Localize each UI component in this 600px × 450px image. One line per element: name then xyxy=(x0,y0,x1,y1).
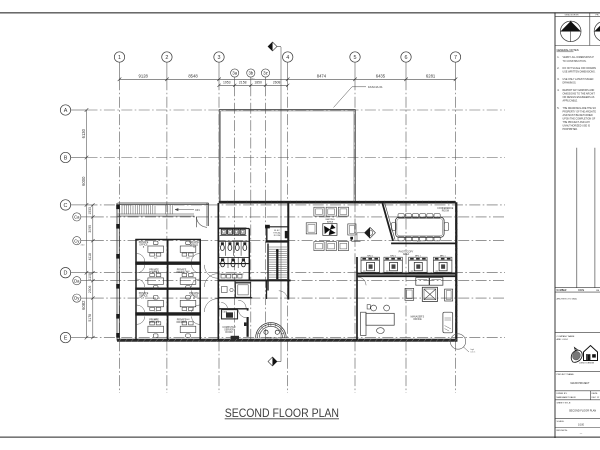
svg-text:THE DRAWINGS ARE THE SO: THE DRAWINGS ARE THE SO xyxy=(563,107,597,110)
svg-text:DRAWINGS.: DRAWINGS. xyxy=(563,82,577,85)
svg-text:OFFICE 2: OFFICE 2 xyxy=(176,322,187,324)
svg-text:5.: 5. xyxy=(557,107,559,110)
svg-text:1850: 1850 xyxy=(254,81,262,85)
svg-text:1.: 1. xyxy=(557,56,559,59)
svg-text:3z: 3z xyxy=(263,71,267,76)
svg-text:USE WRITTEN DIMENSIONS.: USE WRITTEN DIMENSIONS. xyxy=(563,71,596,74)
svg-text:APPLICABLE.: APPLICABLE. xyxy=(563,100,579,103)
svg-text:6435: 6435 xyxy=(376,74,386,79)
svg-text:0.5 m: 0.5 m xyxy=(471,351,476,353)
svg-text:2158: 2158 xyxy=(239,81,247,85)
svg-text:9128: 9128 xyxy=(139,74,149,79)
svg-text:4.: 4. xyxy=(557,89,559,92)
svg-text:DEC 12: DEC 12 xyxy=(592,397,600,399)
svg-text:REPORT ANY ERRORS AND: REPORT ANY ERRORS AND xyxy=(563,89,595,92)
svg-text:C: C xyxy=(64,203,68,209)
svg-text:OR DESIGN ENGINEERS AS: OR DESIGN ENGINEERS AS xyxy=(563,96,595,99)
svg-text:SCALE:: SCALE: xyxy=(557,420,565,423)
svg-text:3b: 3b xyxy=(248,71,253,76)
svg-text:AREA: AREA xyxy=(403,253,410,256)
svg-text:OFFICE 3: OFFICE 3 xyxy=(149,272,160,274)
svg-text:THE PROJECT AND ANY: THE PROJECT AND ANY xyxy=(563,121,591,124)
svg-text:A06: A06 xyxy=(154,311,157,314)
svg-text:OFFICE 1: OFFICE 1 xyxy=(149,322,160,324)
svg-text:2608: 2608 xyxy=(273,81,281,85)
svg-text:OFFICE: OFFICE xyxy=(413,319,422,321)
svg-text:A06: A06 xyxy=(186,318,189,321)
svg-text:2: 2 xyxy=(165,55,168,61)
svg-text:ROOM: ROOM xyxy=(225,332,232,334)
svg-text:AND LOGO: AND LOGO xyxy=(557,338,569,341)
svg-text:LORZO DESIGN: LORZO DESIGN xyxy=(579,363,595,365)
svg-text:3.: 3. xyxy=(557,78,559,81)
svg-text:SECOND FLOOR PLAN: SECOND FLOOR PLAN xyxy=(225,406,339,420)
svg-text:MANAGER'S: MANAGER'S xyxy=(411,315,425,318)
svg-text:RE: RE xyxy=(596,290,600,292)
svg-text:ARCHITECT'S SEAL: ARCHITECT'S SEAL xyxy=(557,298,578,301)
svg-text:MARGARET KAUR: MARGARET KAUR xyxy=(557,396,576,399)
svg-text:1953: 1953 xyxy=(223,81,231,85)
svg-text:3: 3 xyxy=(218,55,221,61)
svg-text:A06: A06 xyxy=(186,311,189,314)
svg-text:3a: 3a xyxy=(232,71,237,76)
svg-text:Da: Da xyxy=(74,278,80,283)
svg-text:TO CONSTRUCTION.: TO CONSTRUCTION. xyxy=(563,60,587,63)
svg-text:2306: 2306 xyxy=(88,286,92,294)
svg-text:UPON THE COMPLETION OF: UPON THE COMPLETION OF xyxy=(563,118,596,121)
svg-text:ROOM: ROOM xyxy=(442,211,449,213)
svg-text:4118: 4118 xyxy=(88,253,92,260)
svg-text:5: 5 xyxy=(354,55,357,61)
svg-text:1108: 1108 xyxy=(88,273,92,280)
svg-text:1533: 1533 xyxy=(88,207,92,215)
svg-text:DATE: DATE xyxy=(578,289,584,292)
svg-text:VERIFY ALL DIMENSIONS P: VERIFY ALL DIMENSIONS P xyxy=(563,56,595,59)
svg-text:UNAUTHORIZED USE IS: UNAUTHORIZED USE IS xyxy=(563,125,591,128)
svg-text:6000: 6000 xyxy=(81,176,86,186)
svg-text:PROJECT NAME:: PROJECT NAME: xyxy=(557,373,575,376)
svg-text:5178: 5178 xyxy=(88,314,92,322)
svg-text:3095: 3095 xyxy=(88,225,92,233)
svg-text:6130: 6130 xyxy=(81,128,86,138)
svg-text:DRWN BY:: DRWN BY: xyxy=(557,393,568,395)
svg-text:GRID NORTH: GRID NORTH xyxy=(565,15,579,17)
svg-text:1/100: 1/100 xyxy=(578,424,585,427)
svg-text:1: 1 xyxy=(118,55,121,61)
svg-text:6082: 6082 xyxy=(81,300,86,310)
svg-text:ROOM: ROOM xyxy=(274,235,281,237)
svg-text:COMPANY NAME: COMPANY NAME xyxy=(557,335,575,338)
svg-text:Cy: Cy xyxy=(74,238,80,243)
svg-text:8548: 8548 xyxy=(188,74,198,79)
svg-text:PROHIBITED.: PROHIBITED. xyxy=(563,128,579,131)
svg-text:NUMBER: NUMBER xyxy=(557,290,567,292)
svg-text:A06: A06 xyxy=(186,257,189,260)
svg-text:RECEPTION: RECEPTION xyxy=(266,337,278,339)
svg-text:E: E xyxy=(64,336,68,342)
svg-text:D: D xyxy=(64,271,68,277)
svg-text:4: 4 xyxy=(286,55,289,61)
svg-text:A: A xyxy=(64,108,68,114)
svg-text:OFFICE 4: OFFICE 4 xyxy=(176,272,187,274)
svg-text:PROPERTY OF THE ARCHITE: PROPERTY OF THE ARCHITE xyxy=(563,110,597,113)
svg-text:SHEET TITLE:: SHEET TITLE: xyxy=(557,402,572,404)
svg-text:2.: 2. xyxy=(557,67,559,70)
svg-text:OMISSIONS TO THE ARCHIT: OMISSIONS TO THE ARCHIT xyxy=(563,92,596,95)
svg-text:B: B xyxy=(64,156,68,162)
svg-text:7: 7 xyxy=(454,55,457,61)
svg-text:DATE:: DATE: xyxy=(592,392,599,395)
svg-text:USE ONLY LATEST ISSUED: USE ONLY LATEST ISSUED xyxy=(563,78,594,81)
svg-text:Ca: Ca xyxy=(74,215,80,220)
svg-text:SECOND FLOOR PLAN: SECOND FLOOR PLAN xyxy=(569,409,596,412)
svg-text:AND MUST BE RETURNED: AND MUST BE RETURNED xyxy=(563,114,594,117)
svg-text:DO NOT SCALE OFF DRAWIN: DO NOT SCALE OFF DRAWIN xyxy=(563,67,597,70)
svg-text:6281: 6281 xyxy=(426,74,436,79)
svg-text:FASCIA 01: FASCIA 01 xyxy=(368,85,383,89)
svg-text:GENERAL NOTES:: GENERAL NOTES: xyxy=(557,48,580,52)
svg-text:A06: A06 xyxy=(186,270,189,273)
svg-text:6: 6 xyxy=(405,55,408,61)
svg-text:REVISION:: REVISION: xyxy=(557,430,568,432)
svg-text:AREA: AREA xyxy=(327,220,333,223)
svg-text:MAJIR PROJECT: MAJIR PROJECT xyxy=(571,382,591,385)
svg-text:8474: 8474 xyxy=(317,74,327,79)
svg-text:PR: PR xyxy=(595,15,598,17)
svg-text:DN: DN xyxy=(195,208,199,212)
svg-text:Dy: Dy xyxy=(74,296,80,301)
svg-text:A06: A06 xyxy=(154,257,157,260)
